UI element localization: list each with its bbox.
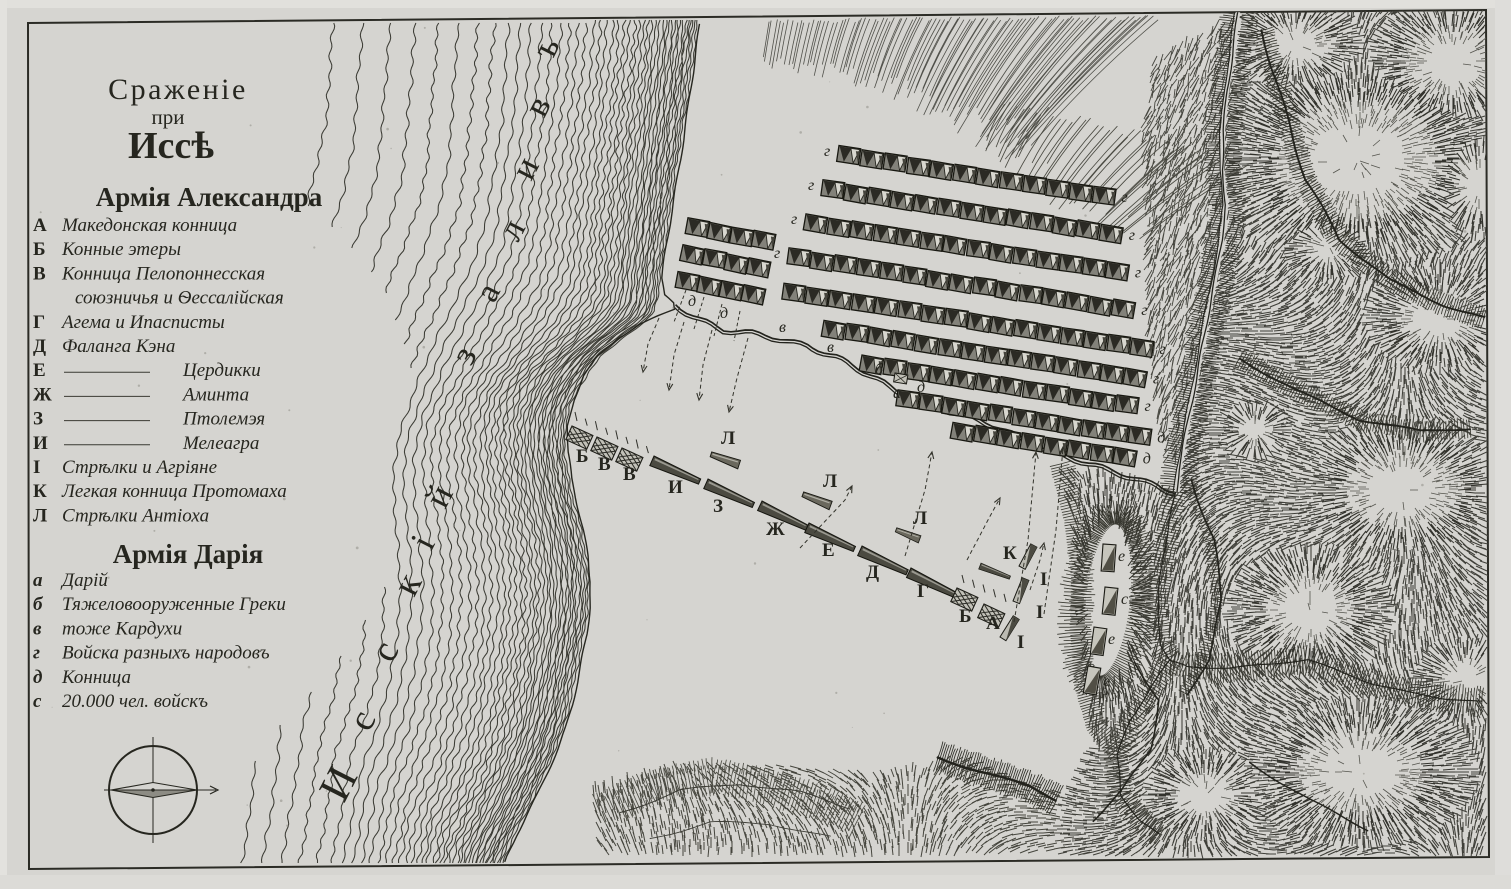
svg-text:Легкая конница Протомаха: Легкая конница Протомаха	[61, 481, 287, 502]
svg-text:Македонская конница: Македонская конница	[61, 215, 237, 236]
svg-text:І: І	[1036, 602, 1043, 623]
svg-text:Армія Дарія: Армія Дарія	[113, 539, 264, 569]
svg-text:в: в	[33, 618, 42, 639]
svg-text:г: г	[808, 177, 814, 194]
svg-text:д: д	[688, 293, 696, 310]
svg-text:г: г	[1145, 398, 1151, 415]
svg-text:Е: Е	[822, 540, 835, 561]
svg-text:Войска разныхъ народовъ: Войска разныхъ народовъ	[62, 643, 270, 664]
svg-text:Птолемэя: Птолемэя	[182, 409, 265, 430]
svg-text:Мелеагра: Мелеагра	[182, 433, 259, 454]
svg-text:Л: Л	[913, 508, 927, 529]
svg-text:В: В	[598, 454, 611, 475]
svg-text:Конница: Конница	[61, 667, 131, 688]
svg-text:г: г	[1135, 265, 1141, 282]
svg-text:Аминта: Аминта	[181, 384, 249, 405]
svg-text:З: З	[33, 409, 43, 430]
svg-text:А: А	[986, 613, 1000, 634]
svg-text:І: І	[33, 457, 40, 478]
svg-text:е: е	[1118, 548, 1125, 565]
svg-text:д: д	[1157, 429, 1165, 446]
svg-text:д: д	[917, 379, 925, 396]
svg-text:К: К	[1003, 543, 1017, 564]
svg-text:Г: Г	[917, 581, 929, 602]
svg-text:а: а	[33, 570, 43, 591]
svg-text:б: б	[875, 361, 884, 378]
svg-text:И: И	[668, 477, 683, 498]
svg-text:З: З	[713, 496, 723, 517]
svg-text:г: г	[33, 643, 40, 664]
svg-text:Л: Л	[33, 505, 47, 526]
svg-text:б: б	[33, 594, 44, 615]
svg-text:А: А	[33, 215, 47, 236]
svg-text:г: г	[1153, 371, 1159, 388]
svg-text:е: е	[1103, 673, 1110, 690]
svg-text:в: в	[779, 319, 786, 336]
svg-text:Л: Л	[823, 471, 837, 492]
svg-text:Стрѣлки и Агріяне: Стрѣлки и Агріяне	[62, 457, 217, 478]
svg-text:с: с	[1121, 591, 1128, 608]
svg-text:Д: Д	[33, 336, 46, 357]
svg-text:В: В	[623, 464, 636, 485]
svg-text:И: И	[33, 433, 48, 454]
svg-text:г: г	[1129, 227, 1135, 244]
svg-text:г: г	[791, 211, 797, 228]
svg-text:г: г	[1159, 341, 1165, 358]
svg-text:Б: Б	[33, 239, 46, 260]
svg-text:Ж: Ж	[766, 519, 785, 540]
svg-text:Стрѣлки Антіоха: Стрѣлки Антіоха	[62, 505, 209, 526]
svg-text:Ж: Ж	[33, 384, 52, 405]
svg-text:тоже Кардухи: тоже Кардухи	[62, 618, 182, 639]
svg-text:Д: Д	[866, 562, 879, 583]
svg-text:Тяжеловооруженные Греки: Тяжеловооруженные Греки	[62, 594, 286, 615]
svg-text:в: в	[827, 339, 834, 356]
svg-text:Г: Г	[33, 312, 45, 333]
svg-text:20.000 чел. войскъ: 20.000 чел. войскъ	[62, 691, 208, 712]
svg-text:Агема и Ипасписты: Агема и Ипасписты	[60, 312, 225, 333]
svg-text:а: а	[893, 385, 901, 402]
svg-text:Иссѣ: Иссѣ	[128, 125, 214, 167]
svg-text:с: с	[33, 691, 42, 712]
svg-text:г: г	[1122, 189, 1128, 206]
svg-text:г: г	[774, 245, 780, 262]
svg-text:Л: Л	[721, 428, 735, 449]
svg-text:д: д	[33, 667, 42, 688]
svg-text:Дарій: Дарій	[60, 570, 108, 591]
svg-text:Сраженіе: Сраженіе	[108, 73, 248, 106]
svg-text:г: г	[824, 143, 830, 160]
svg-text:К: К	[33, 481, 47, 502]
svg-text:І: І	[1017, 632, 1024, 653]
svg-text:Е: Е	[33, 360, 46, 381]
svg-text:Цердикки: Цердикки	[182, 360, 261, 381]
svg-text:союзничья и Ѳессалійская: союзничья и Ѳессалійская	[75, 288, 284, 309]
svg-text:д: д	[720, 305, 728, 322]
svg-text:І: І	[1040, 569, 1047, 590]
svg-text:Конные этеры: Конные этеры	[61, 239, 181, 260]
svg-text:Конница Пелопоннесская: Конница Пелопоннесская	[61, 263, 265, 284]
svg-text:В: В	[33, 263, 46, 284]
svg-text:Фаланга Кэна: Фаланга Кэна	[62, 336, 175, 357]
svg-text:Б: Б	[959, 606, 972, 627]
svg-text:Б: Б	[576, 446, 589, 467]
svg-text:г: г	[1141, 302, 1147, 319]
svg-text:е: е	[1108, 631, 1115, 648]
svg-text:д: д	[1143, 450, 1151, 467]
svg-text:Армія Александра: Армія Александра	[96, 182, 323, 212]
